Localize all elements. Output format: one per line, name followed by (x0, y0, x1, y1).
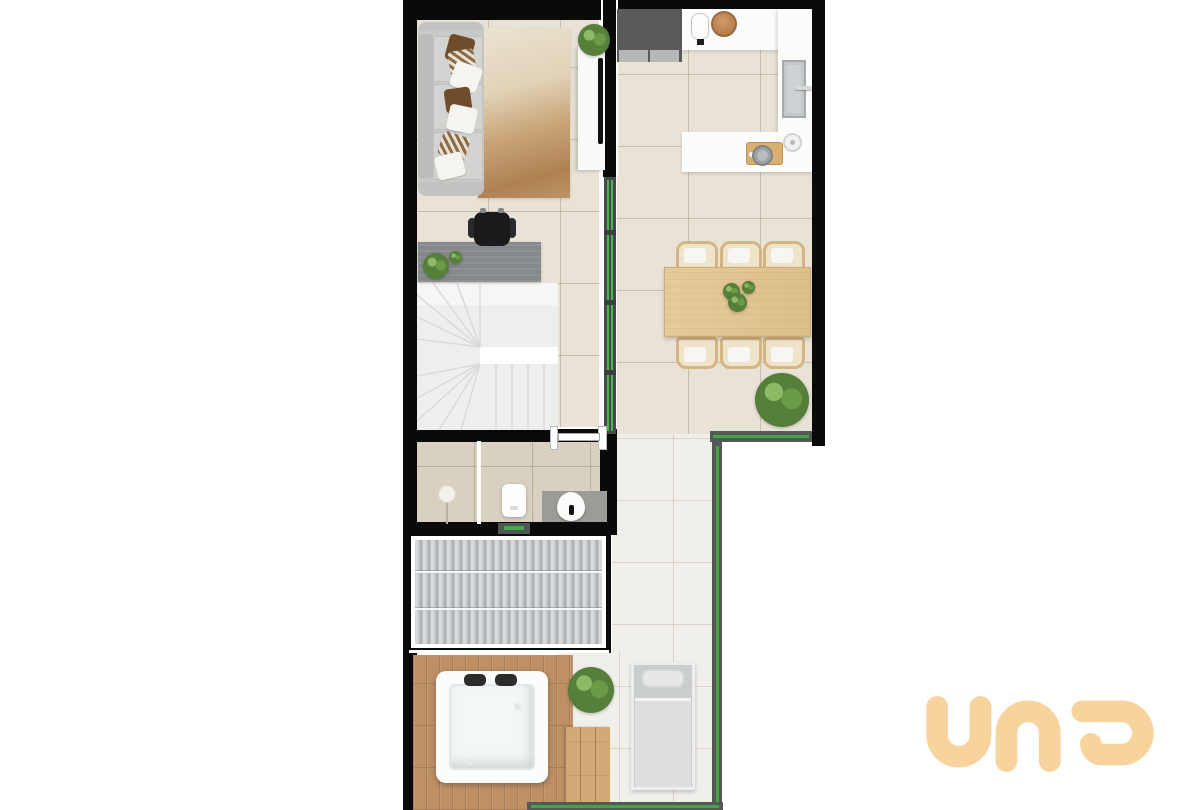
sofa (418, 22, 484, 196)
chair-cushion (728, 347, 750, 362)
door-jamb (550, 426, 558, 450)
covered-roof-slats (411, 536, 606, 648)
floor-plant (755, 373, 809, 427)
chair-cushion (684, 248, 706, 263)
faucet (795, 86, 812, 90)
hot-tub-jet (514, 703, 521, 710)
office-chair-knob (498, 208, 504, 213)
chair-cushion (728, 248, 750, 263)
sofa-backrest (418, 34, 433, 178)
partition-mullion (604, 370, 616, 375)
dining-chair (720, 337, 762, 369)
hot-tub (436, 671, 548, 783)
shower-hose (446, 500, 448, 524)
plant (578, 24, 610, 56)
hot-tub-jet (466, 759, 473, 766)
sofa-pillow-white (446, 103, 479, 134)
una-logo: una (922, 696, 1158, 772)
water-heater-bracket (697, 39, 704, 45)
office-chair-knob (480, 208, 486, 213)
hot-tub-headrest (495, 674, 517, 686)
chair-cushion (771, 248, 793, 263)
wall-right-kitchen (812, 0, 825, 446)
office-chair-seat (474, 212, 510, 246)
kitchen-counter-dark (617, 9, 682, 62)
table-plant (728, 293, 747, 312)
kettle (783, 133, 802, 152)
glass-pane-line (607, 180, 609, 431)
wall-top-living (403, 0, 619, 20)
hot-tub-headrest (464, 674, 486, 686)
desk-plant (423, 253, 449, 279)
round-serving-board (711, 11, 737, 37)
dining-chair (763, 337, 805, 369)
railing-glass-line (713, 435, 809, 438)
winder-staircase (417, 283, 558, 430)
pot (752, 145, 773, 166)
partition-mullion (604, 300, 616, 305)
pot-lid (757, 150, 768, 161)
desk-plant (449, 251, 462, 264)
chair-cushion (684, 347, 706, 362)
glass-pane-line (611, 180, 613, 431)
deck-plant (568, 667, 614, 713)
una-logo-glyphs (922, 696, 1158, 772)
toilet (557, 492, 585, 521)
hot-tub-basin (449, 684, 535, 770)
rug (478, 28, 570, 198)
dining-chair (676, 337, 718, 369)
partition-mullion (604, 230, 616, 235)
lounge-chair-pillow (641, 669, 685, 688)
kitchen-bench (650, 50, 679, 62)
glass-railing-bottom (527, 802, 723, 810)
kettle-knob (790, 140, 795, 145)
toilet-flush (569, 505, 574, 515)
railing-glass-line (716, 446, 719, 806)
bathroom-sink (502, 484, 526, 517)
railing-glass-line (531, 805, 719, 808)
door-leaf (558, 433, 600, 441)
lounge-chair (631, 662, 695, 790)
shower-drain (438, 485, 456, 503)
chair-cushion (771, 347, 793, 362)
tv (598, 58, 603, 144)
glass-partition (604, 177, 616, 434)
deck-steps (565, 727, 610, 810)
kitchen-bench (619, 50, 648, 62)
sink-drain (510, 506, 518, 510)
wall-top-kitchen (601, 0, 825, 9)
shower-partition (477, 441, 481, 524)
bathroom-door-glass (504, 526, 524, 530)
glass-railing-right (712, 442, 722, 810)
lounge-chair-lower (635, 701, 691, 787)
water-heater (691, 13, 709, 40)
floorplan-canvas: una (0, 0, 1200, 810)
sofa-armrest-bottom (418, 180, 484, 196)
table-plant (742, 281, 755, 294)
office-chair (468, 208, 516, 246)
glass-railing-top (710, 431, 812, 442)
deck-top-trim (409, 650, 609, 653)
lounge-chair-bar (635, 698, 691, 701)
